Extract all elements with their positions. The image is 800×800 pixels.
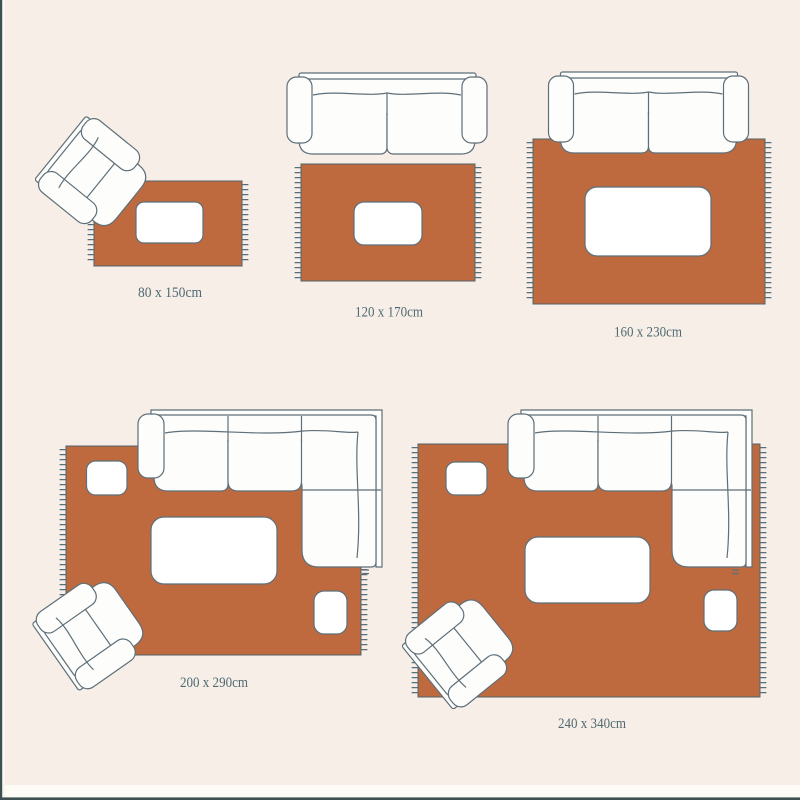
svg-text:200 x 290cm: 200 x 290cm	[180, 675, 249, 691]
svg-text:80 x 150cm: 80 x 150cm	[138, 285, 203, 301]
svg-text:160 x 230cm: 160 x 230cm	[614, 325, 683, 341]
svg-text:240 x 340cm: 240 x 340cm	[558, 716, 627, 732]
svg-text:120 x 170cm: 120 x 170cm	[355, 305, 424, 321]
